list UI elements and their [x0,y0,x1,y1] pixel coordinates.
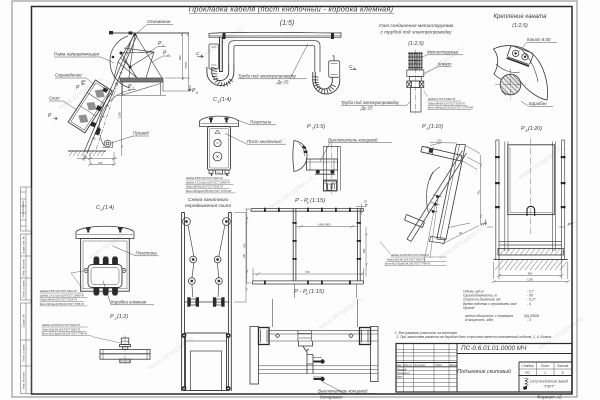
svg-text:- 3: - 3 [527,318,531,322]
svg-text:Труба под электропроводку: Труба под электропроводку [341,100,400,105]
svg-text:С: С [213,97,217,103]
svg-text:Шайба 5.65Г.019.ГОСТ 6402-70: Шайба 5.65Г.019.ГОСТ 6402-70 [186,177,223,180]
svg-text:(1:5): (1:5) [314,124,325,130]
svg-text:Подъемник скиповый: Подъемник скиповый [457,368,511,375]
svg-text:Р: Р [110,314,114,320]
svg-text:2: 2 [166,54,169,58]
svg-text:Прокладка кабеля (пост кнопочн: Прокладка кабеля (пост кнопочный - короб… [189,5,394,14]
svg-text:(1:10): (1:10) [429,124,443,130]
svg-text:Винт М5-6gх20.58.019.ГОСТ 1747: Винт М5-6gх20.58.019.ГОСТ 17473-80 [186,190,232,193]
svg-text:Привод: Привод [463,306,475,310]
svg-text:Инв. № подл.: Инв. № подл. [21,371,25,389]
svg-text:1300: 1300 [527,278,533,282]
svg-text:700: 700 [305,270,310,274]
svg-text:Согласовано: Согласовано [21,200,25,218]
svg-text:N мощность, кВт: N мощность, кВт [465,318,494,322]
svg-text:Привод: Привод [133,131,149,136]
svg-text:С: С [96,205,100,211]
svg-text:Взам. инв. №: Взам. инв. № [21,236,25,253]
svg-text:(1:4): (1:4) [103,205,114,211]
svg-text:1350: 1350 [118,111,122,118]
svg-text:(1:2,5): (1:2,5) [512,23,528,29]
svg-text:Труба под электропроводку: Труба под электропроводку [238,74,297,79]
svg-text:Шайба 1.8.Ст2кп.019.ГОСТ 10450: Шайба 1.8.Ст2кп.019.ГОСТ 10450-78 [40,294,84,297]
svg-text:Хомут: Хомут [437,62,452,67]
svg-text:(1:2,5): (1:2,5) [408,41,424,47]
svg-text:1: 1 [544,371,546,375]
svg-text:Основание: Основание [147,19,171,24]
svg-text:7: 7 [132,87,134,91]
svg-text:Гайка М12-6Н.019.ГОСТ 5915-70: Гайка М12-6Н.019.ГОСТ 5915-70 [387,258,426,261]
svg-text:- 4: - 4 [527,302,531,306]
svg-text:Коробка клемная: Коробка клемная [111,300,147,305]
svg-text:Шайба 8.65Г.019.ГОСТ 6402-70: Шайба 8.65Г.019.ГОСТ 6402-70 [40,290,77,293]
svg-text:Стадия: Стадия [522,364,534,368]
svg-text:Узел соединения металлорукава: Узел соединения металлорукава [379,23,454,29]
svg-text:Барабан: Барабан [529,101,547,106]
svg-text:6: 6 [196,91,198,95]
svg-text:Ду 25: Ду 25 [276,80,289,85]
svg-text:Ду 25: Ду 25 [360,106,373,111]
svg-text:8: 8 [562,371,564,375]
svg-text:Пластина: Пластина [136,251,158,256]
svg-text:с трубой под электропроводку: с трубой под электропроводку [381,29,453,36]
svg-text:Формат А2: Формат А2 [537,395,562,400]
svg-text:Металлорукав: Металлорукав [427,50,458,55]
svg-text:Лист: Лист [540,364,550,368]
svg-text:ГИП: ГИП [397,375,404,379]
svg-text:(1:15): (1:15) [309,289,324,295]
svg-text:Шайба 12.65Г.019.ГОСТ 6402-70: Шайба 12.65Г.019.ГОСТ 6402-70 [391,254,429,257]
svg-text:Шайба 1.5.Ст2кп.019.ГОСТ 10450: Шайба 1.5.Ст2кп.019.ГОСТ 10450-78 [186,181,230,184]
svg-text:Болт М8-6gх40.58.019.ГОСТ 7798: Болт М8-6gх40.58.019.ГОСТ 7798-70 [40,303,84,306]
svg-text:Винт М6-6gх25.58.019.ГОСТ 1747: Винт М6-6gх25.58.019.ГОСТ 17473-80 [428,107,474,110]
svg-text:ООО Копейский Завод: ООО Копейский Завод [530,380,568,384]
svg-text:Подп.: Подп. [436,363,443,367]
svg-text:1555: 1555 [184,61,188,68]
svg-text:"УЗЛТ": "УЗЛТ" [543,385,555,389]
svg-text:2. При заготовке канатов на ба: 2. При заготовке канатов на барабан блок… [395,335,552,339]
svg-text:Копировал: Копировал [320,395,343,400]
svg-text:Подп. и дата: Подп. и дата [21,344,25,362]
svg-text:Выключатель концевой: Выключатель концевой [328,138,378,143]
svg-text:Выключатель концевой: Выключатель концевой [318,389,368,394]
svg-text:Шайба 6.ГОСТ 6402-70: Шайба 6.ГОСТ 6402-70 [428,98,456,101]
svg-text:Инв. № дубл.: Инв. № дубл. [21,258,25,275]
svg-text:№ докум.: № докум. [414,363,426,367]
svg-text:ПС-0.6.01.01.0000 МЧ: ПС-0.6.01.01.0000 МЧ [461,345,527,352]
svg-text:Гайка М6-6Н.019.ГОСТ 5915-70: Гайка М6-6Н.019.ГОСТ 5915-70 [428,102,465,105]
svg-text:230: 230 [437,139,442,143]
svg-text:800: 800 [528,272,533,276]
svg-text:(1:2): (1:2) [117,314,128,320]
svg-text:Р: Р [521,126,525,132]
svg-text:НВ: НВ [242,254,246,258]
svg-text:РО: РО [525,371,530,375]
svg-text:С: С [196,51,200,57]
svg-text:Болт М12-6gх50.58.019.ГОСТ 779: Болт М12-6gх50.58.019.ГОСТ 7798-70 [385,263,431,266]
svg-text:Р: Р [422,124,426,130]
svg-text:передвижения скипа: передвижения скипа [185,203,232,209]
svg-text:Пост кнопочный: Пост кнопочный [247,139,282,144]
svg-text:(1:15): (1:15) [310,198,325,204]
svg-text:(1:4): (1:4) [220,97,231,103]
svg-text:Справ. №: Справ. № [21,315,25,328]
svg-text:Гайка М12-6Н.019.ГОСТ 5915-70: Гайка М12-6Н.019.ГОСТ 5915-70 [42,328,81,331]
svg-text:Р: Р [307,124,311,130]
svg-text:690: 690 [362,248,366,253]
svg-text:Шайба 10.65Г.019.ГОСТ 6402-70: Шайба 10.65Г.019.ГОСТ 6402-70 [42,324,80,327]
svg-text:Схема канатного: Схема канатного [188,197,229,203]
svg-text:(1:5): (1:5) [280,20,294,27]
svg-text:Листов: Листов [556,364,569,368]
svg-text:Крепление каната: Крепление каната [494,14,548,20]
svg-text:Болт М12-6gх45.58.019.ГОСТ 779: Болт М12-6gх45.58.019.ГОСТ 7798-70 [42,333,88,336]
svg-text:(1:20): (1:20) [528,126,542,132]
svg-text:Скип: Скип [49,96,60,101]
svg-text:745: 745 [243,243,247,248]
svg-text:Гайка М5-6Н.019.ГОСТ 5915-70: Гайка М5-6Н.019.ГОСТ 5915-70 [186,186,223,189]
svg-text:Пластина: Пластина [250,120,272,125]
svg-text:С: С [349,64,353,70]
svg-text:Канат 8.00: Канат 8.00 [527,37,551,42]
svg-text:Гайка М8-6Н.019.ГОСТ 5915-70: Гайка М8-6Н.019.ГОСТ 5915-70 [40,299,77,302]
svg-text:Дата: Дата [449,363,457,367]
svg-text:760: 760 [98,161,103,165]
svg-text:Подп. и дата: Подп. и дата [21,280,25,298]
svg-text:Рама направляющая: Рама направляющая [54,52,100,57]
svg-text:980: 980 [178,55,182,60]
svg-text:1400-1800: 1400-1800 [318,223,331,227]
svg-text:1: 1 [162,44,164,48]
svg-text:Ограждение: Ограждение [55,73,82,78]
